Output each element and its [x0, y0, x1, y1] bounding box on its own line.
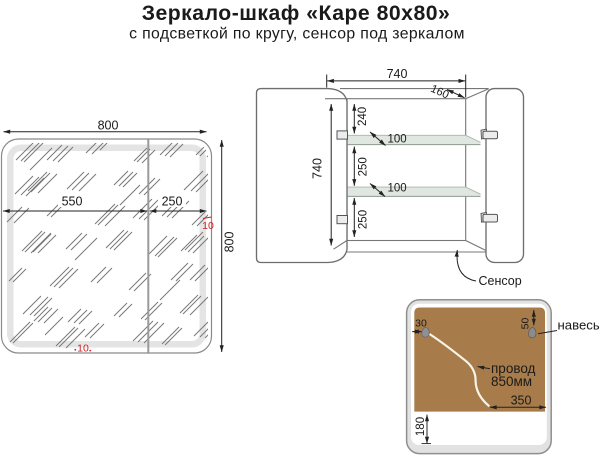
- svg-text:10: 10: [77, 342, 89, 354]
- svg-text:250: 250: [357, 157, 369, 176]
- svg-text:250: 250: [357, 210, 369, 229]
- svg-text:Зеркало-шкаф «Каре 80х80»: Зеркало-шкаф «Каре 80х80»: [142, 2, 451, 25]
- svg-text:30: 30: [415, 318, 427, 330]
- svg-text:100: 100: [388, 134, 407, 146]
- svg-text:180: 180: [415, 417, 427, 436]
- svg-text:с подсветкой по кругу, сенсор: с подсветкой по кругу, сенсор под зеркал…: [129, 26, 465, 43]
- svg-text:550: 550: [62, 195, 83, 209]
- svg-text:50: 50: [520, 318, 532, 330]
- svg-text:250: 250: [162, 195, 183, 209]
- svg-text:800: 800: [223, 232, 237, 253]
- svg-text:350: 350: [511, 394, 532, 408]
- svg-text:740: 740: [387, 67, 408, 81]
- svg-text:740: 740: [311, 158, 325, 179]
- svg-text:850мм: 850мм: [491, 374, 532, 389]
- svg-text:Сенсор: Сенсор: [479, 274, 522, 288]
- svg-text:100: 100: [388, 183, 407, 195]
- svg-text:10: 10: [202, 220, 214, 232]
- svg-text:800: 800: [98, 119, 119, 133]
- svg-text:240: 240: [357, 107, 369, 126]
- svg-text:навесы: навесы: [558, 318, 600, 333]
